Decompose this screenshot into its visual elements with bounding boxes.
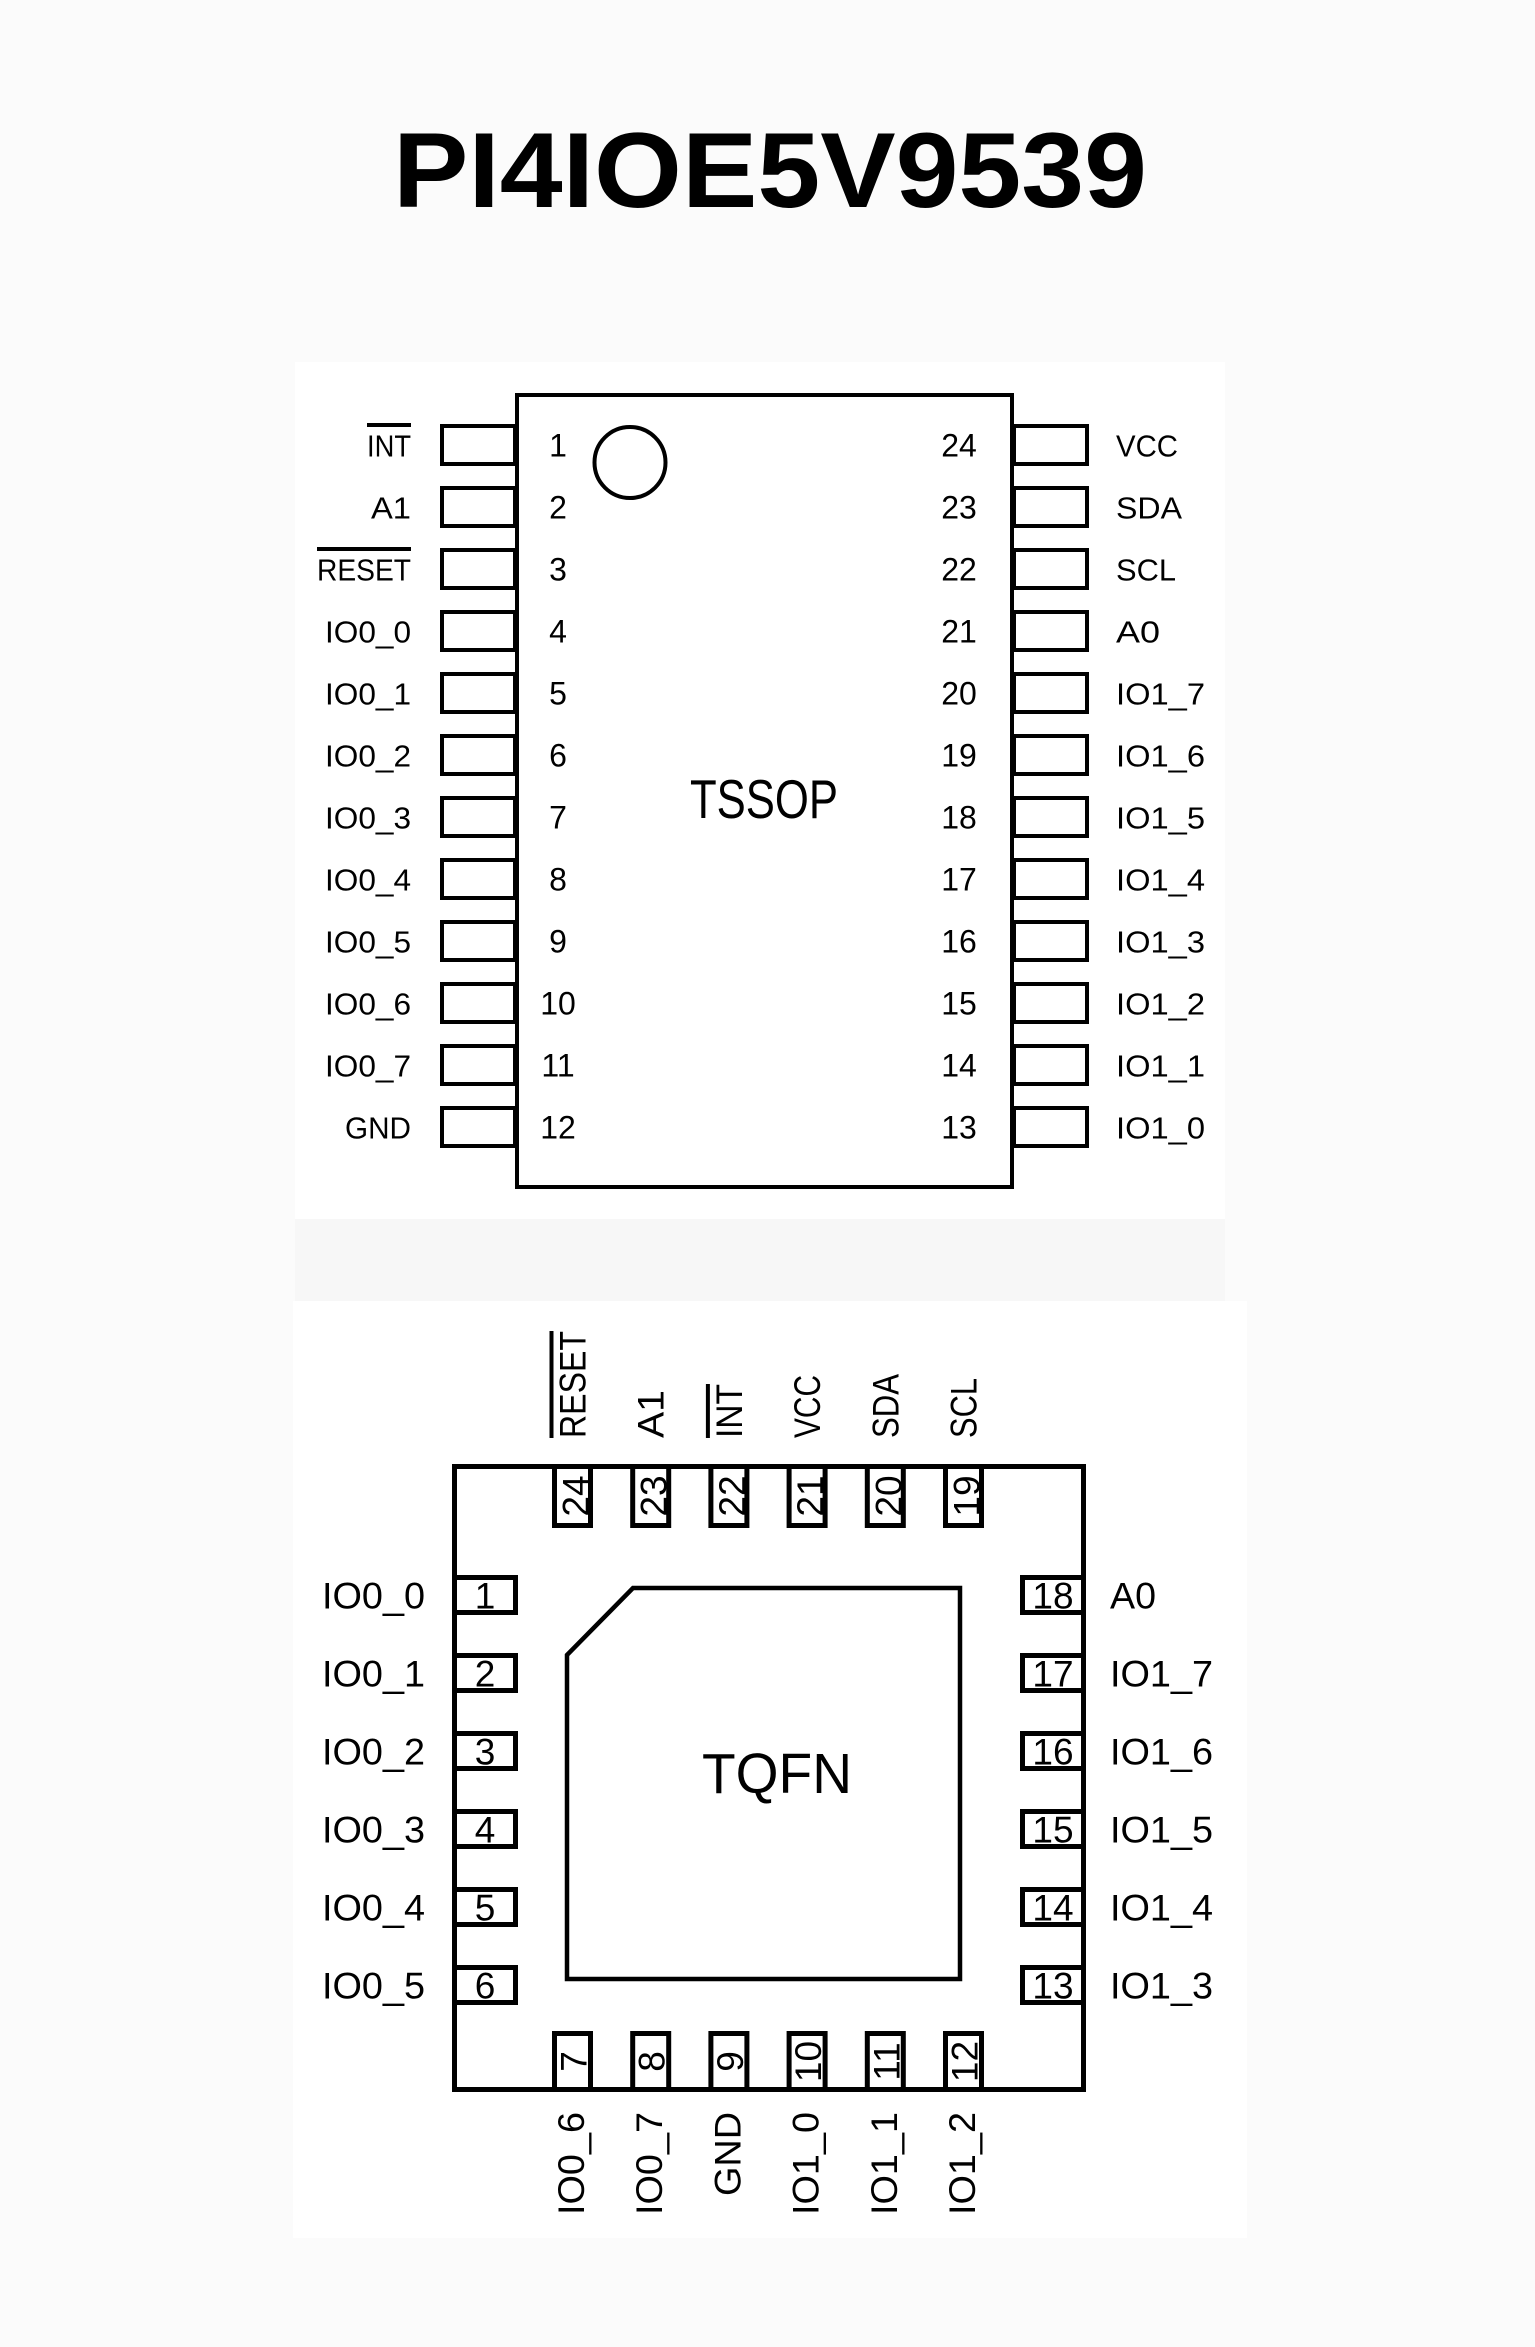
svg-text:11: 11 [541, 1048, 574, 1084]
svg-text:14: 14 [941, 1048, 977, 1084]
svg-text:14: 14 [1032, 1888, 1073, 1929]
svg-text:3: 3 [475, 1732, 496, 1773]
svg-text:IO0_2: IO0_2 [322, 1732, 425, 1773]
svg-text:A1: A1 [371, 491, 411, 526]
svg-text:IO0_4: IO0_4 [322, 1888, 425, 1929]
svg-text:IO1_5: IO1_5 [1110, 1810, 1213, 1851]
svg-text:TQFN: TQFN [702, 1742, 852, 1806]
svg-text:20: 20 [941, 676, 977, 712]
svg-text:6: 6 [549, 738, 567, 774]
svg-text:GND: GND [345, 1111, 411, 1146]
svg-text:IO1_5: IO1_5 [1116, 801, 1205, 836]
svg-text:23: 23 [941, 490, 977, 526]
svg-text:16: 16 [941, 924, 977, 960]
svg-text:IO1_7: IO1_7 [1110, 1654, 1213, 1695]
svg-text:2: 2 [475, 1654, 496, 1695]
svg-text:9: 9 [710, 2051, 751, 2072]
svg-text:21: 21 [941, 614, 977, 650]
svg-text:SCL: SCL [944, 1378, 985, 1438]
svg-text:15: 15 [941, 986, 977, 1022]
svg-text:IO0_6: IO0_6 [551, 2112, 592, 2215]
svg-text:19: 19 [947, 1475, 988, 1516]
svg-text:23: 23 [634, 1475, 675, 1516]
svg-text:22: 22 [712, 1475, 753, 1516]
svg-text:19: 19 [941, 738, 977, 774]
svg-text:IO1_1: IO1_1 [1116, 1049, 1205, 1084]
svg-text:4: 4 [549, 614, 567, 650]
svg-text:17: 17 [941, 862, 977, 898]
svg-text:IO1_2: IO1_2 [942, 2112, 983, 2215]
svg-text:IO1_7: IO1_7 [1116, 677, 1205, 712]
svg-text:22: 22 [941, 552, 977, 588]
svg-text:IO1_3: IO1_3 [1116, 925, 1205, 960]
svg-text:5: 5 [549, 676, 567, 712]
svg-text:IO1_3: IO1_3 [1110, 1966, 1213, 2007]
svg-text:IO0_2: IO0_2 [325, 739, 411, 774]
svg-text:20: 20 [868, 1475, 909, 1516]
svg-text:24: 24 [941, 428, 977, 464]
svg-text:IO1_2: IO1_2 [1116, 987, 1205, 1022]
svg-text:IO1_1: IO1_1 [864, 2112, 905, 2215]
svg-text:A0: A0 [1110, 1576, 1156, 1617]
svg-text:IO0_1: IO0_1 [322, 1654, 425, 1695]
svg-text:SCL: SCL [1116, 553, 1176, 588]
svg-text:IO0_4: IO0_4 [325, 863, 411, 898]
svg-text:16: 16 [1032, 1732, 1073, 1773]
svg-text:IO0_0: IO0_0 [325, 615, 411, 650]
svg-text:GND: GND [707, 2112, 748, 2196]
svg-text:VCC: VCC [1116, 429, 1178, 464]
svg-text:11: 11 [866, 2042, 907, 2080]
svg-text:IO0_7: IO0_7 [629, 2112, 670, 2215]
svg-text:IO1_4: IO1_4 [1116, 863, 1205, 898]
svg-text:1: 1 [475, 1576, 496, 1617]
svg-text:10: 10 [788, 2041, 829, 2082]
svg-text:13: 13 [941, 1110, 977, 1146]
svg-text:5: 5 [475, 1888, 496, 1929]
svg-text:17: 17 [1032, 1654, 1073, 1695]
svg-text:7: 7 [554, 2051, 595, 2072]
svg-text:8: 8 [632, 2051, 673, 2072]
svg-text:IO1_0: IO1_0 [786, 2112, 827, 2215]
svg-text:21: 21 [790, 1475, 831, 1516]
svg-text:10: 10 [540, 986, 576, 1022]
svg-text:IO0_3: IO0_3 [322, 1810, 425, 1851]
svg-text:IO0_5: IO0_5 [325, 925, 411, 960]
svg-text:3: 3 [549, 552, 567, 588]
svg-text:INT: INT [367, 429, 411, 464]
svg-text:IO1_0: IO1_0 [1116, 1111, 1205, 1146]
svg-text:8: 8 [549, 862, 567, 898]
svg-text:IO1_6: IO1_6 [1116, 739, 1205, 774]
svg-text:7: 7 [549, 800, 567, 836]
svg-text:PI4IOE5V9539: PI4IOE5V9539 [393, 110, 1147, 230]
svg-text:IO0_5: IO0_5 [322, 1966, 425, 2007]
svg-text:SDA: SDA [1116, 491, 1182, 526]
svg-text:15: 15 [1032, 1810, 1073, 1851]
svg-text:9: 9 [549, 924, 567, 960]
svg-text:4: 4 [475, 1810, 496, 1851]
svg-text:SDA: SDA [865, 1374, 906, 1438]
svg-text:18: 18 [941, 800, 977, 836]
svg-text:RESET: RESET [553, 1331, 594, 1438]
svg-text:1: 1 [549, 428, 567, 464]
svg-text:12: 12 [945, 2041, 986, 2082]
svg-text:24: 24 [556, 1475, 597, 1516]
svg-text:A1: A1 [631, 1390, 672, 1438]
svg-text:IO0_3: IO0_3 [325, 801, 411, 836]
svg-text:VCC: VCC [787, 1375, 828, 1438]
svg-text:18: 18 [1032, 1576, 1073, 1617]
svg-text:TSSOP: TSSOP [690, 768, 838, 830]
svg-text:2: 2 [549, 490, 567, 526]
svg-text:6: 6 [475, 1966, 496, 2007]
svg-text:IO0_7: IO0_7 [325, 1049, 411, 1084]
svg-text:IO1_4: IO1_4 [1110, 1888, 1213, 1929]
svg-text:A0: A0 [1116, 615, 1160, 650]
svg-text:IO0_1: IO0_1 [325, 677, 411, 712]
svg-text:IO0_0: IO0_0 [322, 1576, 425, 1617]
svg-text:12: 12 [540, 1110, 576, 1146]
svg-text:13: 13 [1032, 1966, 1073, 2007]
svg-text:IO0_6: IO0_6 [325, 987, 411, 1022]
svg-text:IO1_6: IO1_6 [1110, 1732, 1213, 1773]
svg-text:RESET: RESET [317, 553, 411, 588]
svg-text:INT: INT [709, 1384, 750, 1438]
